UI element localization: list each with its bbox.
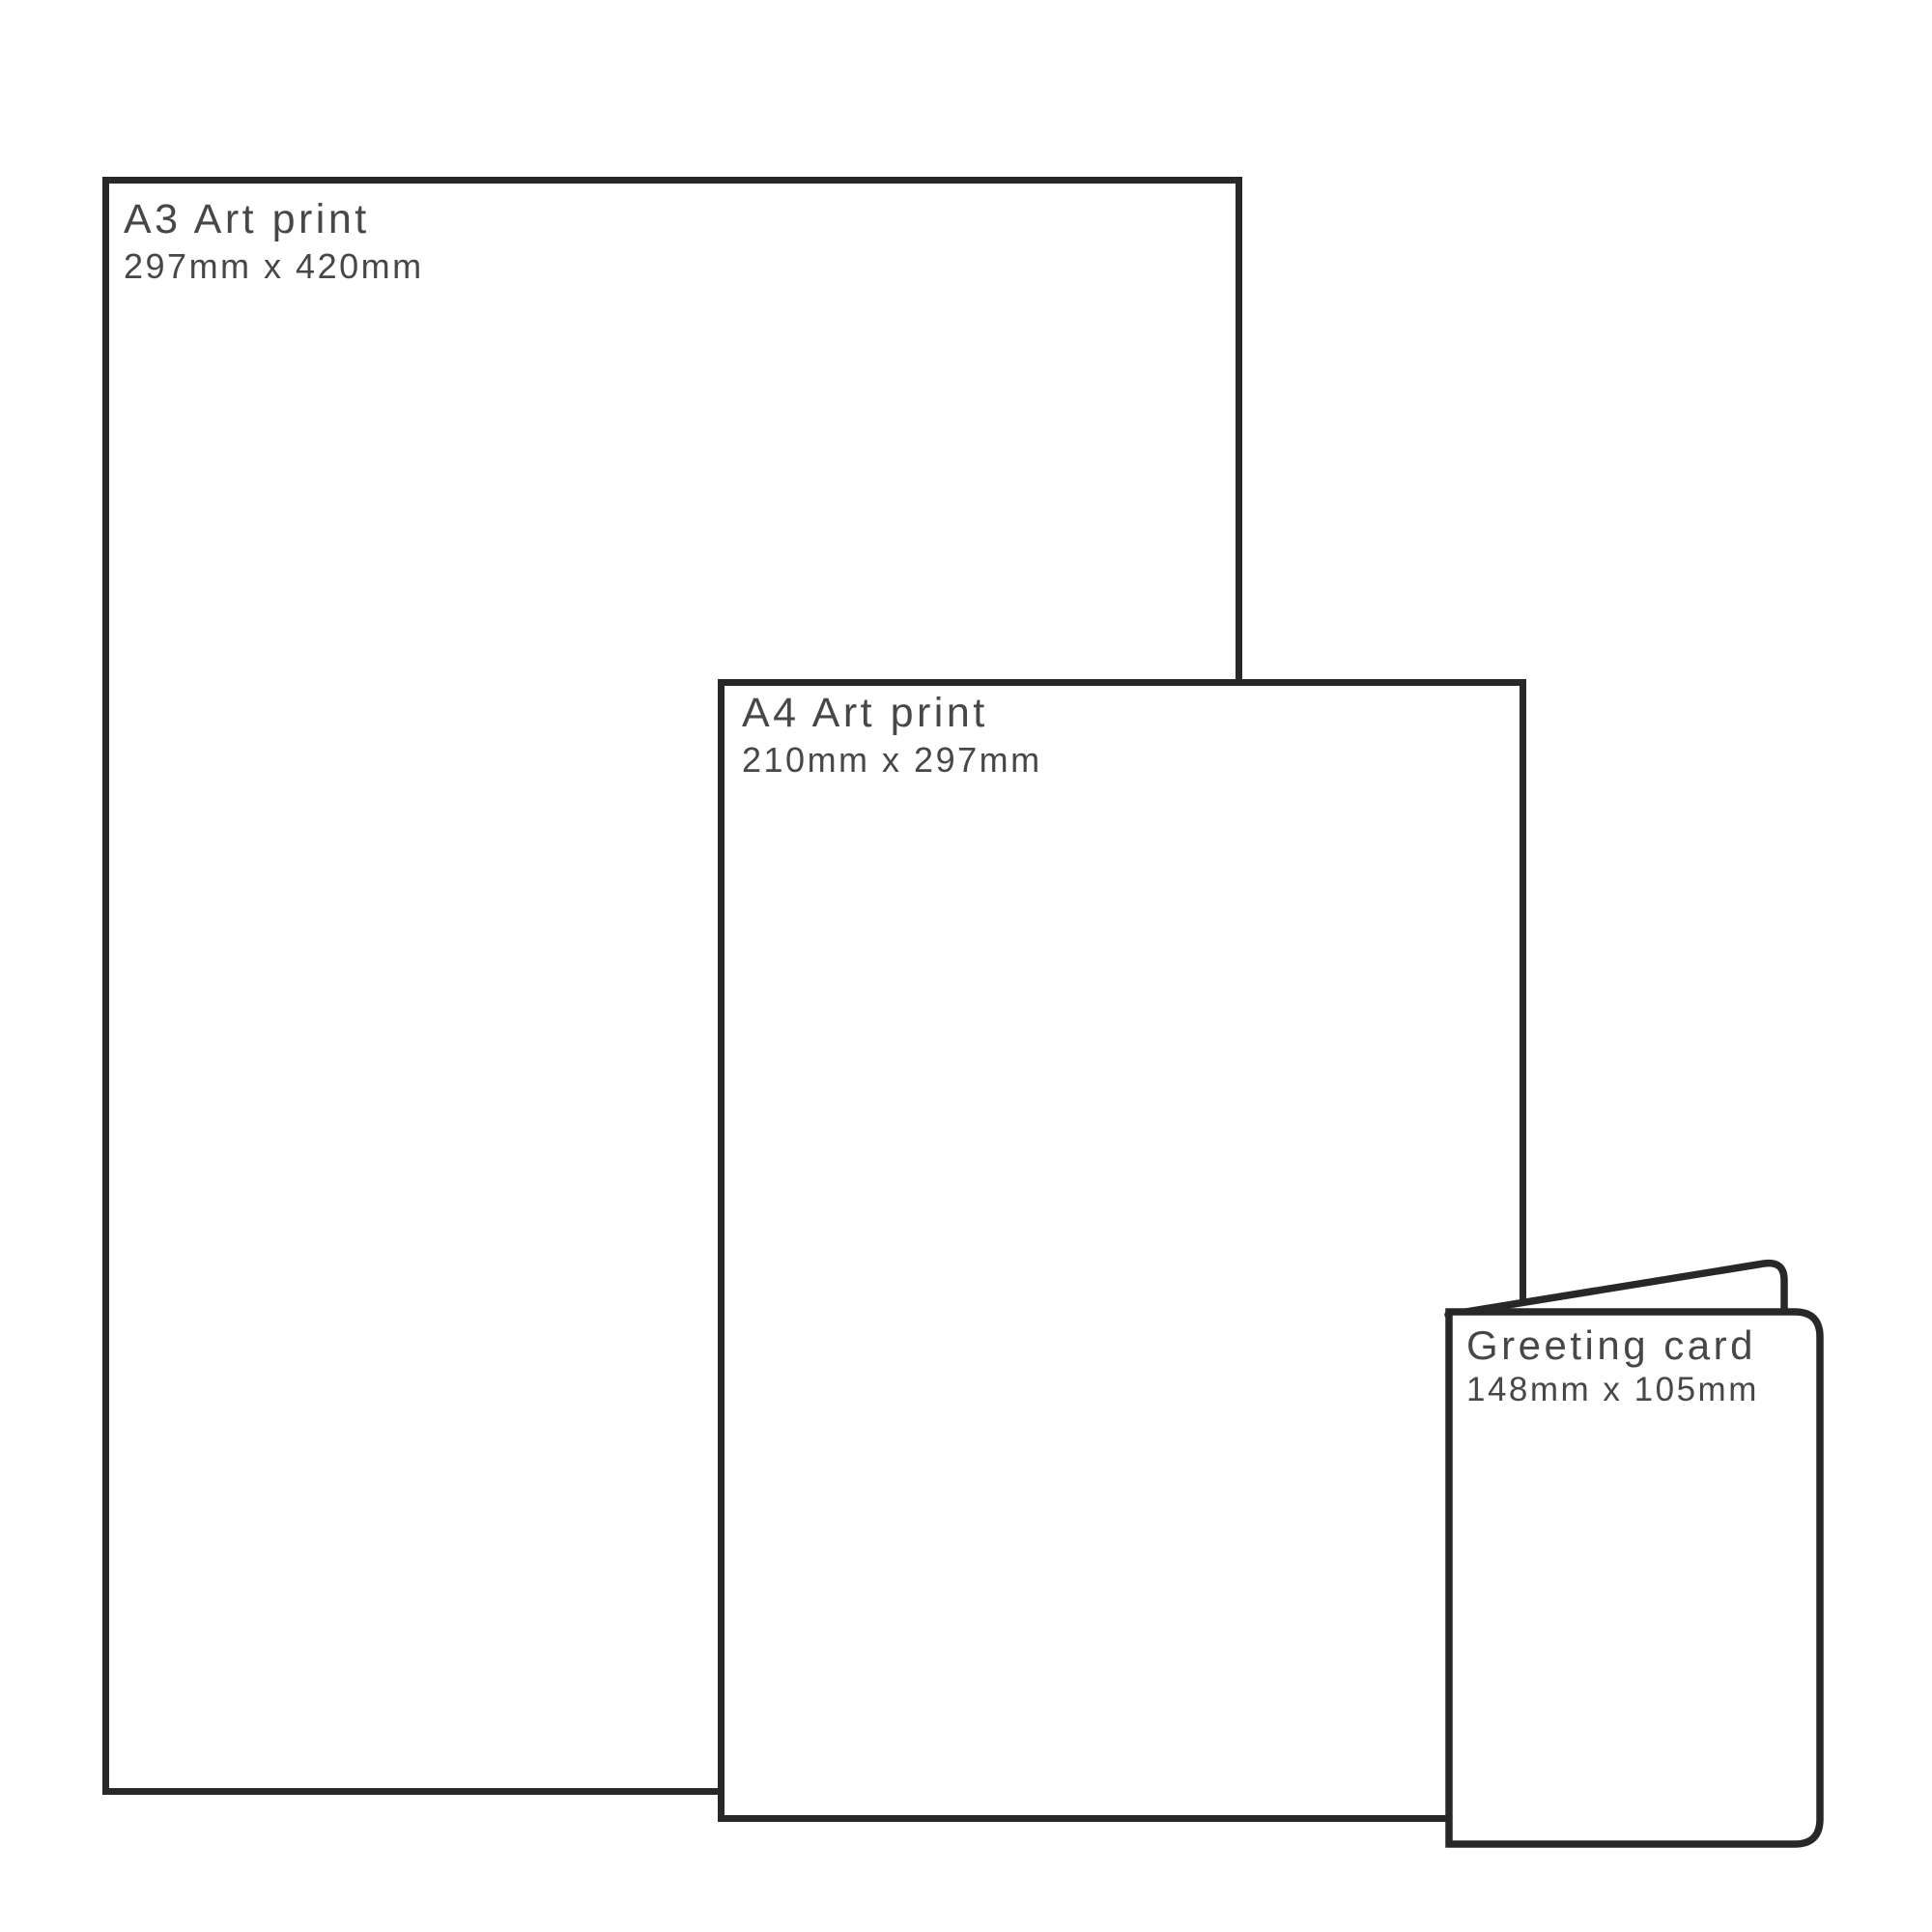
a4-title: A4 Art print xyxy=(742,690,1520,737)
greeting-card-outline xyxy=(1381,1207,1864,1884)
a3-dimensions: 297mm x 420mm xyxy=(124,246,1236,286)
greeting-card-back-panel xyxy=(1448,1264,1784,1315)
size-comparison-diagram: A3 Art print 297mm x 420mm A4 Art print … xyxy=(0,0,1932,1932)
a3-label: A3 Art print 297mm x 420mm xyxy=(124,196,1236,287)
a3-title: A3 Art print xyxy=(124,196,1236,243)
greeting-card-front-panel xyxy=(1449,1312,1820,1844)
a4-label: A4 Art print 210mm x 297mm xyxy=(742,690,1520,781)
a4-dimensions: 210mm x 297mm xyxy=(742,740,1520,780)
